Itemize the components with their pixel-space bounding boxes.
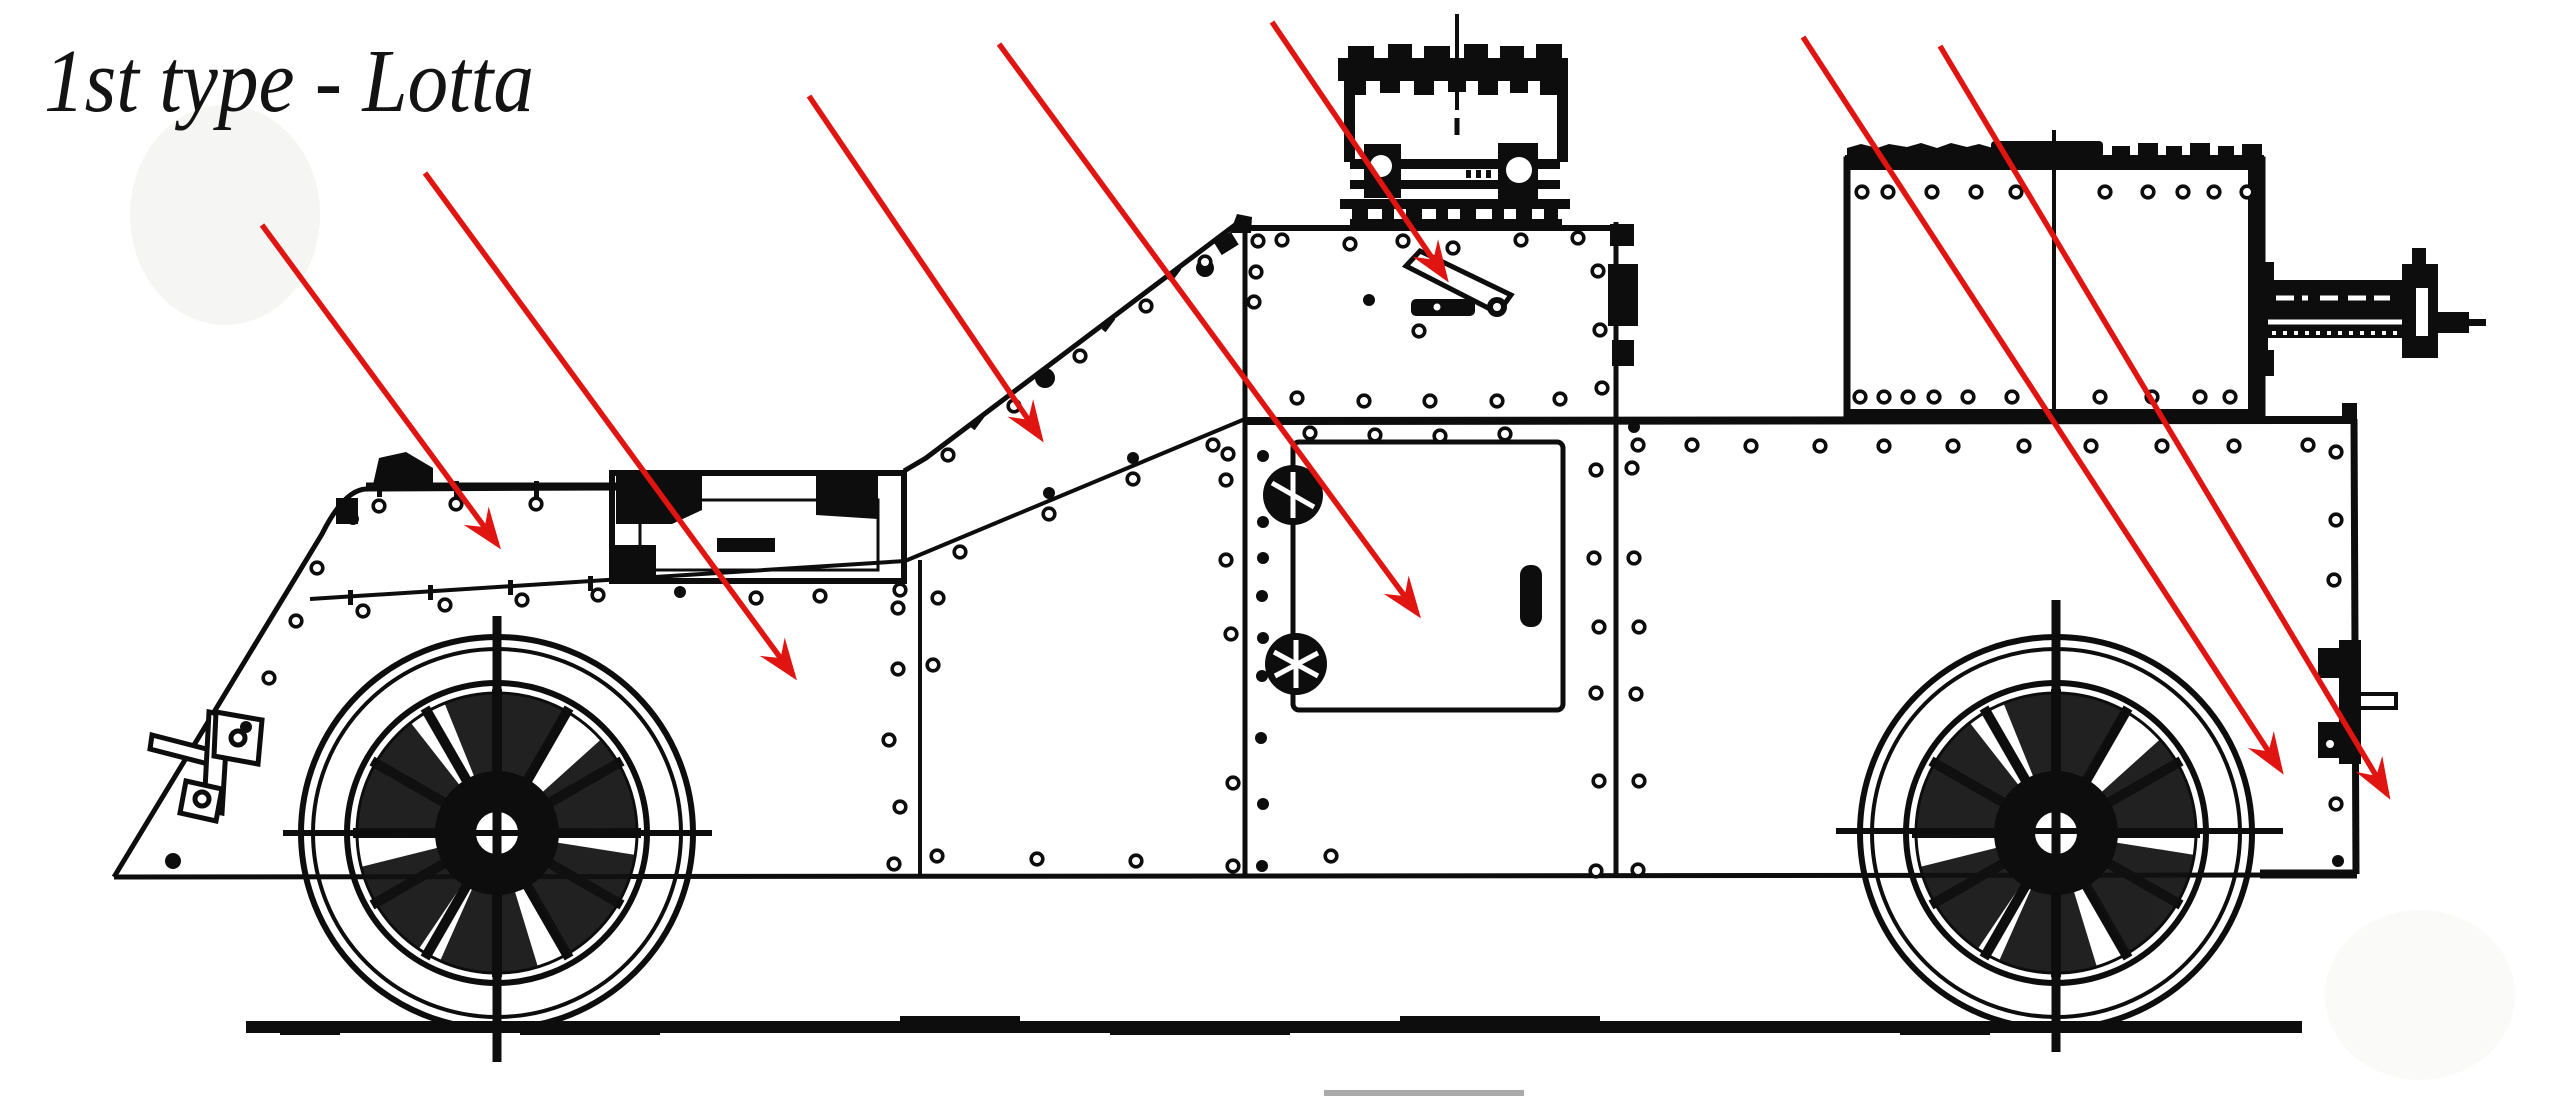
svg-text:1st type - Lotta: 1st type - Lotta <box>44 32 534 131</box>
